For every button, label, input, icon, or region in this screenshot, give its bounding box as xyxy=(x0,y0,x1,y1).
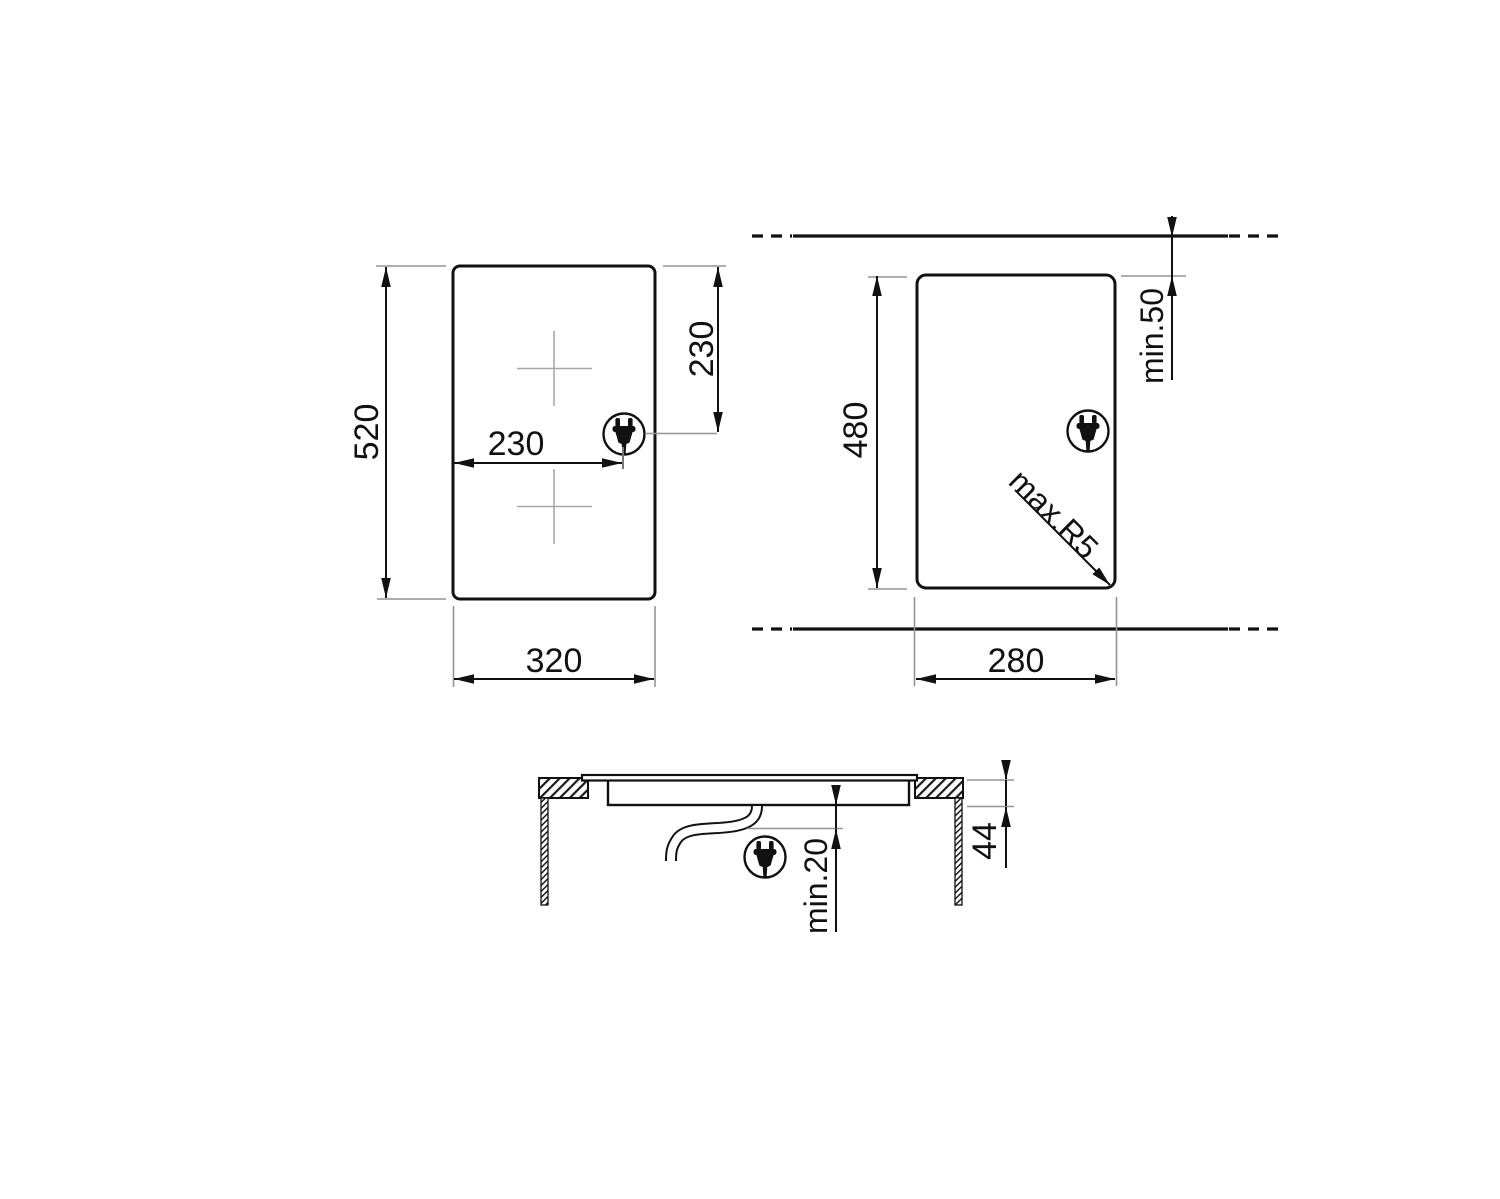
dimension-zone-offset-y-230: 230 xyxy=(683,267,721,432)
power-plug-icon xyxy=(745,837,786,878)
dimension-label-zone-offset-y: 230 xyxy=(683,321,721,378)
power-plug-icon xyxy=(1068,411,1109,452)
cabinet-panel-right xyxy=(955,798,962,905)
hob-dimension-diagram: 520 230 230 320 xyxy=(0,0,1500,1199)
dimension-label-zone-offset-x: 230 xyxy=(488,425,545,463)
dimension-cutout-height-480: 480 xyxy=(837,276,877,588)
dimension-label-rear-clearance: min.50 xyxy=(1134,288,1170,384)
dimension-rear-clearance-min50: min.50 xyxy=(1134,216,1177,384)
worktop-section-right xyxy=(915,778,963,798)
dimension-label-cutout-height: 480 xyxy=(837,402,875,459)
section-view: min.20 44 xyxy=(539,760,1014,934)
dimension-height-520: 520 xyxy=(348,267,386,598)
cabinet-panel-left xyxy=(541,798,548,905)
dimension-label-cutout-width: 280 xyxy=(988,642,1045,680)
dimension-cutout-width-280: 280 xyxy=(916,642,1115,680)
top-view: 520 230 230 320 xyxy=(348,266,726,687)
cutout-view: min.50 480 280 max.R5 xyxy=(752,216,1281,686)
dimension-label-height: 520 xyxy=(348,404,386,461)
dimension-label-depth: 44 xyxy=(966,822,1004,860)
hob-body-section xyxy=(608,780,909,805)
worktop-section-left xyxy=(539,778,588,798)
dimension-drawing-page: 520 230 230 320 xyxy=(0,0,1500,1199)
hob-glass-top xyxy=(582,775,917,781)
dimension-label-clearance-below: min.20 xyxy=(798,838,834,934)
dimension-width-320: 320 xyxy=(454,642,654,680)
dimension-label-width: 320 xyxy=(526,642,583,680)
dimension-depth-44: 44 xyxy=(966,760,1014,868)
